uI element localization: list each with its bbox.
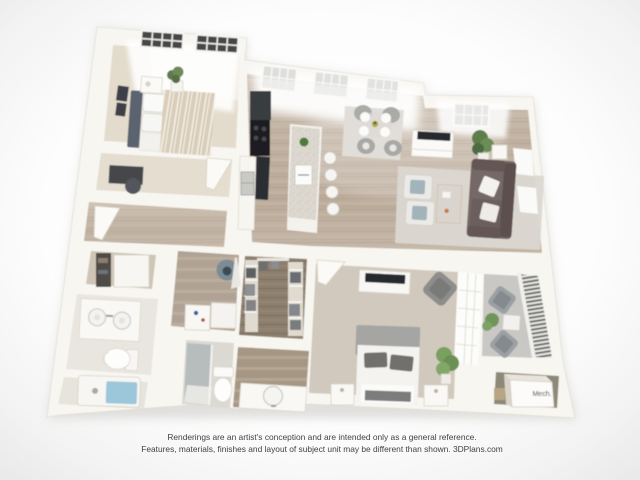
svg-text:Mech.: Mech. bbox=[532, 391, 551, 398]
svg-text:Renderings are an artist's con: Renderings are an artist's conception an… bbox=[167, 432, 476, 442]
svg-text:Features, materials, finishes: Features, materials, finishes and layout… bbox=[141, 444, 503, 454]
